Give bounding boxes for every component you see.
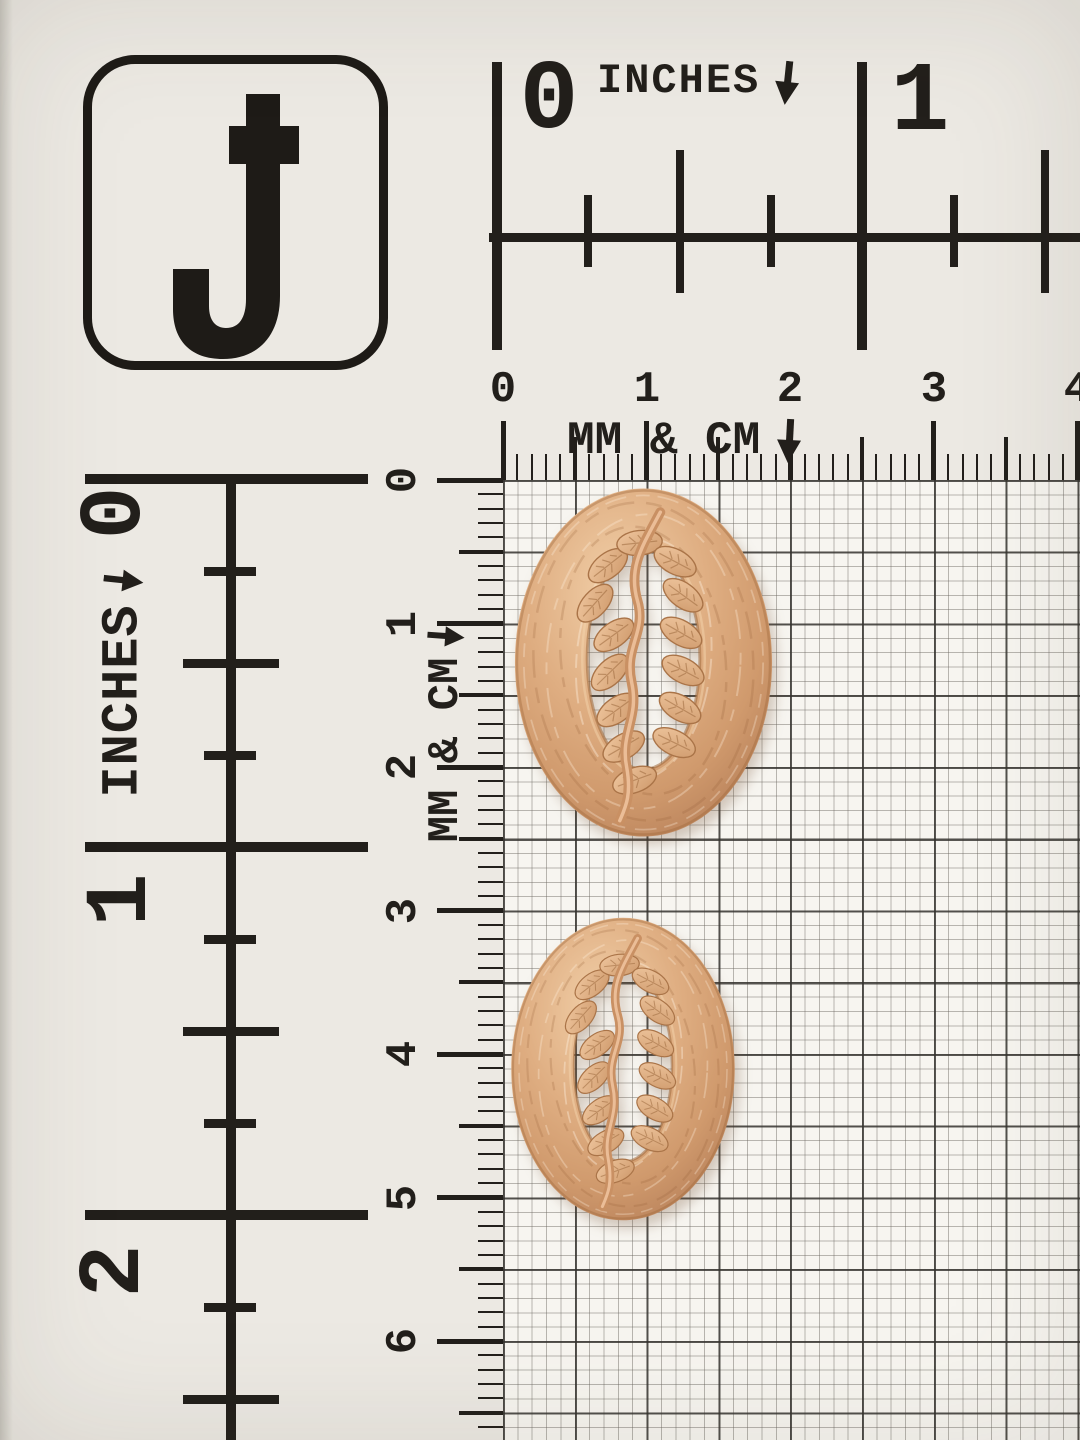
ruler-label: 1 — [79, 874, 167, 927]
ruler-tick — [559, 454, 561, 480]
ruler-tick — [478, 881, 503, 883]
ruler-label: 2 — [382, 754, 426, 780]
ruler-tick — [478, 565, 503, 567]
ruler-label: 1 — [634, 368, 660, 412]
ruler-tick — [478, 709, 503, 711]
ruler-label: 1 — [891, 55, 950, 153]
ruler-label: 3 — [382, 898, 426, 924]
button-small — [507, 916, 739, 1222]
ruler-tick — [478, 996, 503, 998]
ruler-tick — [478, 1283, 503, 1285]
ruler-tick — [459, 1267, 503, 1271]
ruler-tick — [459, 1124, 503, 1128]
ruler-tick — [478, 1082, 503, 1084]
mm-cm-label-text: MM & CM — [421, 658, 471, 843]
ruler-tick — [478, 1039, 503, 1041]
ruler-tick — [478, 1326, 503, 1328]
ruler-tick — [478, 1168, 503, 1170]
ruler-tick — [478, 1397, 503, 1399]
ruler-tick — [437, 478, 503, 483]
ruler-tick — [1019, 454, 1021, 480]
ruler-tick — [1075, 421, 1080, 480]
ruler-tick — [478, 953, 503, 955]
ruler-tick — [478, 1211, 503, 1213]
ruler-tick — [459, 1411, 503, 1415]
ruler-tick — [1004, 437, 1008, 480]
ruler-label: 3 — [921, 368, 947, 412]
ruler-label: 4 — [382, 1041, 426, 1067]
ruler-tick — [478, 723, 503, 725]
ruler-tick — [1048, 454, 1050, 480]
ruler-tick — [478, 938, 503, 940]
ruler-tick — [478, 508, 503, 510]
ruler-tick — [478, 1010, 503, 1012]
ruler-tick — [818, 454, 820, 480]
ruler-tick — [860, 437, 864, 480]
ruler-tick — [478, 608, 503, 610]
ruler-tick — [478, 967, 503, 969]
ruler-tick — [478, 651, 503, 653]
ruler-tick — [478, 924, 503, 926]
ruler-tick — [478, 1297, 503, 1299]
ruler-label: 5 — [382, 1185, 426, 1211]
ruler-tick — [962, 454, 964, 480]
mm-cm-label-top: MM & CM — [567, 415, 802, 467]
ruler-tick — [478, 1153, 503, 1155]
ruler-tick — [478, 1096, 503, 1098]
ruler-tick — [990, 454, 992, 480]
ruler-tick — [478, 752, 503, 754]
ruler-tick — [478, 493, 503, 495]
ruler-tick — [890, 454, 892, 480]
ruler-tick — [478, 1311, 503, 1313]
ruler-tick — [875, 454, 877, 480]
ruler-tick — [459, 550, 503, 554]
ruler-tick — [478, 1240, 503, 1242]
ruler-tick — [478, 737, 503, 739]
ruler-tick — [478, 1110, 503, 1112]
ruler-label: 6 — [382, 1328, 426, 1354]
ruler-tick — [478, 852, 503, 854]
ruler-tick — [437, 908, 503, 913]
ruler-label: 1 — [382, 611, 426, 637]
ruler-tick — [478, 866, 503, 868]
ruler-tick — [478, 666, 503, 668]
ruler-label: 0 — [382, 467, 426, 493]
ruler-tick — [478, 795, 503, 797]
ruler-tick — [1062, 454, 1064, 480]
ruler-label: 4 — [1064, 368, 1080, 412]
ruler-tick — [976, 454, 978, 480]
ruler-tick — [478, 809, 503, 811]
ruler-tick — [531, 454, 533, 480]
ruler-tick — [478, 1254, 503, 1256]
button-large — [512, 484, 775, 841]
ruler-tick — [459, 980, 503, 984]
ruler-label: 0 — [490, 368, 516, 412]
ruler-tick — [847, 454, 849, 480]
ruler-tick — [931, 421, 936, 480]
ruler-tick — [478, 1067, 503, 1069]
right-arrow-icon — [426, 624, 465, 649]
ruler-tick — [478, 1426, 503, 1428]
ruler-tick — [478, 1225, 503, 1227]
ruler-tick — [437, 1052, 503, 1057]
ruler-tick — [478, 536, 503, 538]
ruler-tick — [1033, 454, 1035, 480]
ruler-label: 2 — [777, 368, 803, 412]
ruler-tick — [478, 1369, 503, 1371]
ruler-tick — [478, 1383, 503, 1385]
ruler-tick — [478, 1354, 503, 1356]
ruler-tick — [478, 579, 503, 581]
ruler-label: 0 — [520, 53, 579, 151]
ruler-tick — [437, 1339, 503, 1344]
photo-edge-shadow — [0, 0, 13, 1440]
ruler-tick — [437, 1195, 503, 1200]
ruler-tick — [478, 1182, 503, 1184]
ruler-tick — [904, 454, 906, 480]
ruler-tick — [478, 1139, 503, 1141]
ruler-tick — [478, 522, 503, 524]
mm-cm-label-left: MM & CM — [421, 626, 471, 843]
mm-cm-label-text: MM & CM — [567, 415, 760, 467]
left-mm-cm-ruler: MM & CM — [0, 0, 520, 1440]
ruler-tick — [545, 454, 547, 480]
ruler-tick — [478, 680, 503, 682]
ruler-tick — [947, 454, 949, 480]
ruler-label: 2 — [72, 1245, 160, 1298]
ruler-tick — [478, 637, 503, 639]
ruler-label: 0 — [73, 487, 161, 540]
down-arrow-icon — [775, 416, 803, 465]
ruler-tick — [804, 454, 806, 480]
ruler-tick — [918, 454, 920, 480]
ruler-tick — [478, 594, 503, 596]
ruler-tick — [832, 454, 834, 480]
photo-canvas: J INCHES MM & CM INCHES — [0, 0, 1080, 1440]
ruler-tick — [478, 823, 503, 825]
ruler-tick — [478, 895, 503, 897]
ruler-tick — [478, 780, 503, 782]
ruler-tick — [478, 1024, 503, 1026]
